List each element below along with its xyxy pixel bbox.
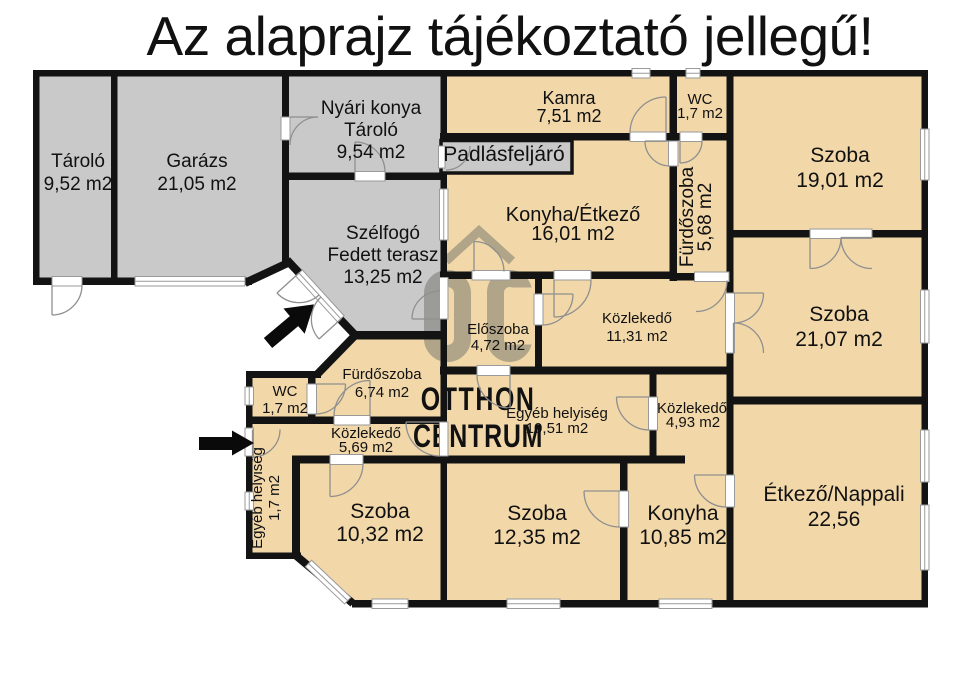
svg-text:CENTRUM: CENTRUM [413,419,543,455]
svg-text:Fedett terasz: Fedett terasz [328,245,439,266]
svg-text:22,56: 22,56 [808,508,861,531]
svg-text:5,69 m2: 5,69 m2 [339,439,393,456]
svg-text:19,01 m2: 19,01 m2 [796,169,884,192]
svg-text:9,52 m2: 9,52 m2 [44,174,113,195]
svg-text:Tároló: Tároló [344,120,398,141]
svg-text:11,31 m2: 11,31 m2 [606,328,667,345]
svg-text:Fürdőszoba: Fürdőszoba [342,366,422,383]
svg-text:Konyha: Konyha [647,502,719,525]
svg-text:10,85 m2: 10,85 m2 [639,526,727,549]
svg-text:21,05 m2: 21,05 m2 [157,174,236,195]
svg-text:Szoba: Szoba [809,303,869,326]
svg-text:Szoba: Szoba [350,500,410,523]
svg-text:Szélfogó: Szélfogó [346,223,420,244]
svg-text:Előszoba: Előszoba [467,321,529,338]
svg-text:5,68 m2: 5,68 m2 [695,183,716,252]
svg-text:Nyári konya: Nyári konya [321,98,422,119]
svg-text:Garázs: Garázs [166,151,227,172]
svg-text:Szoba: Szoba [810,144,870,167]
svg-text:10,51 m2: 10,51 m2 [526,420,589,437]
svg-text:6,74 m2: 6,74 m2 [355,384,409,401]
svg-text:Az alaprajz tájékoztató jelleg: Az alaprajz tájékoztató jellegű! [147,5,874,67]
svg-text:Egyéb helyiség: Egyéb helyiség [249,447,266,549]
svg-text:1,7 m2: 1,7 m2 [266,475,283,521]
svg-text:21,07 m2: 21,07 m2 [795,328,883,351]
svg-text:Szoba: Szoba [507,502,567,525]
svg-text:10,32 m2: 10,32 m2 [336,523,424,546]
svg-text:9,54 m2: 9,54 m2 [337,142,406,163]
svg-text:12,35 m2: 12,35 m2 [493,526,581,549]
svg-text:Kamra: Kamra [542,88,596,108]
svg-text:WC: WC [273,383,298,400]
svg-text:1,7 m2: 1,7 m2 [677,105,723,122]
svg-text:13,25 m2: 13,25 m2 [343,267,422,288]
svg-text:1,7 m2: 1,7 m2 [262,400,308,417]
svg-text:16,01 m2: 16,01 m2 [531,223,614,245]
svg-text:Közlekedő: Közlekedő [602,310,672,327]
svg-text:4,93 m2: 4,93 m2 [666,414,720,431]
svg-text:Étkező/Nappali: Étkező/Nappali [763,483,904,506]
svg-text:Tároló: Tároló [51,151,105,172]
svg-text:4,72 m2: 4,72 m2 [471,337,525,354]
svg-text:Padlásfeljáró: Padlásfeljáró [443,143,564,166]
svg-text:7,51 m2: 7,51 m2 [536,106,601,126]
